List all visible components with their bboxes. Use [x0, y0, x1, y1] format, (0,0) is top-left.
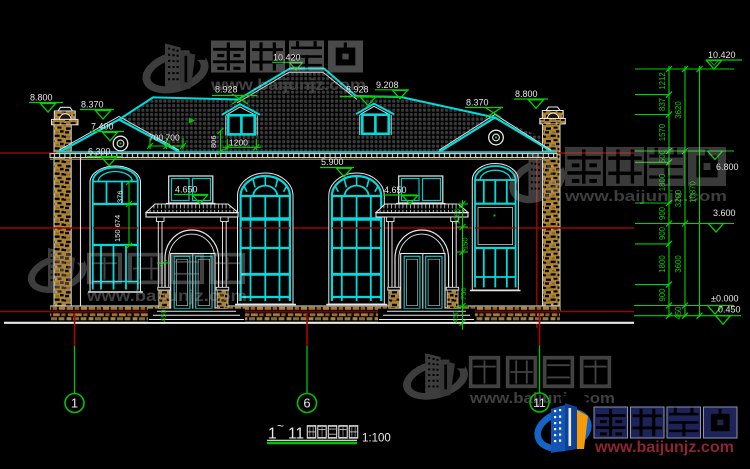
svg-text:9.208: 9.208 — [376, 80, 399, 90]
svg-text:1570: 1570 — [658, 123, 667, 141]
svg-text:150: 150 — [461, 237, 470, 250]
svg-text:900: 900 — [658, 206, 667, 220]
svg-text:10.420: 10.420 — [708, 50, 736, 60]
svg-text:450: 450 — [451, 310, 460, 323]
svg-text:837: 837 — [658, 98, 667, 111]
svg-text:www.baijunjz.com: www.baijunjz.com — [564, 188, 727, 205]
svg-text:700 700: 700 700 — [149, 133, 180, 143]
svg-text:1212: 1212 — [658, 72, 667, 89]
svg-text:750: 750 — [459, 287, 468, 300]
svg-text:1800: 1800 — [658, 255, 667, 273]
svg-text:450: 450 — [159, 309, 168, 322]
svg-text:4.650: 4.650 — [175, 185, 198, 195]
svg-text:1: 1 — [71, 396, 78, 411]
svg-text:150 674: 150 674 — [113, 215, 122, 242]
svg-text:6: 6 — [303, 396, 310, 411]
svg-text:450: 450 — [674, 306, 683, 320]
svg-text:900: 900 — [658, 288, 667, 302]
svg-text:www.baijunjz.com: www.baijunjz.com — [210, 77, 366, 94]
svg-text:3620: 3620 — [674, 101, 683, 119]
svg-text:3.600: 3.600 — [713, 208, 736, 218]
svg-text:1200: 1200 — [229, 138, 248, 148]
svg-text:376: 376 — [116, 190, 125, 203]
svg-text:±0.000: ±0.000 — [711, 294, 738, 304]
svg-text:8.800: 8.800 — [515, 89, 538, 99]
svg-text:8.800: 8.800 — [30, 93, 53, 103]
svg-text:1060: 1060 — [453, 208, 462, 225]
svg-text:1:100: 1:100 — [362, 433, 391, 445]
svg-text:www.baijunjz.com: www.baijunjz.com — [86, 288, 247, 305]
svg-text:900: 900 — [658, 226, 667, 240]
svg-text:~: ~ — [277, 419, 284, 433]
svg-text:7.400: 7.400 — [91, 122, 114, 132]
svg-text:5.900: 5.900 — [321, 157, 344, 167]
svg-text:8.370: 8.370 — [466, 98, 489, 108]
svg-text:4.650: 4.650 — [384, 185, 407, 195]
svg-text:8.370: 8.370 — [81, 100, 104, 110]
svg-text:806: 806 — [209, 135, 218, 148]
svg-text:6.300: 6.300 — [88, 147, 111, 157]
svg-text:www.baijunjz.com: www.baijunjz.com — [594, 439, 734, 456]
svg-text:11: 11 — [533, 396, 546, 410]
svg-text:0.450: 0.450 — [718, 305, 741, 315]
svg-text:3600: 3600 — [674, 255, 683, 273]
